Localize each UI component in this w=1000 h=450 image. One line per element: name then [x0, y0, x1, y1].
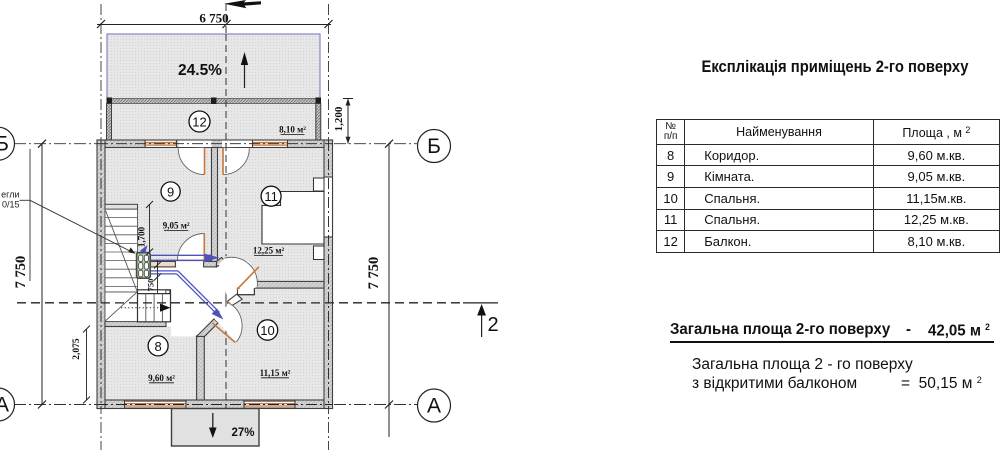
- svg-text:9,60 м²: 9,60 м²: [148, 373, 175, 383]
- svg-text:А: А: [0, 394, 9, 417]
- svg-text:0/15: 0/15: [2, 200, 20, 210]
- svg-text:2: 2: [487, 314, 498, 336]
- svg-text:12: 12: [192, 115, 206, 130]
- svg-text:11,15 м²: 11,15 м²: [260, 368, 291, 378]
- svg-text:1,200: 1,200: [333, 106, 345, 131]
- svg-text:11: 11: [264, 189, 278, 204]
- svg-text:7 750: 7 750: [13, 256, 29, 289]
- svg-text:8,10 м²: 8,10 м²: [279, 125, 306, 135]
- svg-text:1,700: 1,700: [137, 226, 147, 247]
- svg-text:8: 8: [154, 339, 161, 354]
- svg-text:27%: 27%: [231, 427, 254, 439]
- svg-text:750: 750: [146, 279, 156, 292]
- svg-text:24.5%: 24.5%: [178, 62, 222, 79]
- svg-text:9,05 м²: 9,05 м²: [163, 220, 190, 230]
- svg-text:Б: Б: [0, 133, 9, 156]
- svg-text:6 750: 6 750: [199, 11, 228, 26]
- svg-text:10: 10: [260, 323, 274, 338]
- svg-text:Б: Б: [427, 135, 441, 158]
- svg-text:2,075: 2,075: [72, 338, 82, 360]
- svg-text:А: А: [427, 395, 441, 418]
- svg-text:егли: егли: [1, 190, 19, 200]
- svg-text:7 750: 7 750: [366, 257, 382, 290]
- svg-text:9: 9: [167, 185, 174, 200]
- svg-text:12,25 м²: 12,25 м²: [253, 246, 285, 256]
